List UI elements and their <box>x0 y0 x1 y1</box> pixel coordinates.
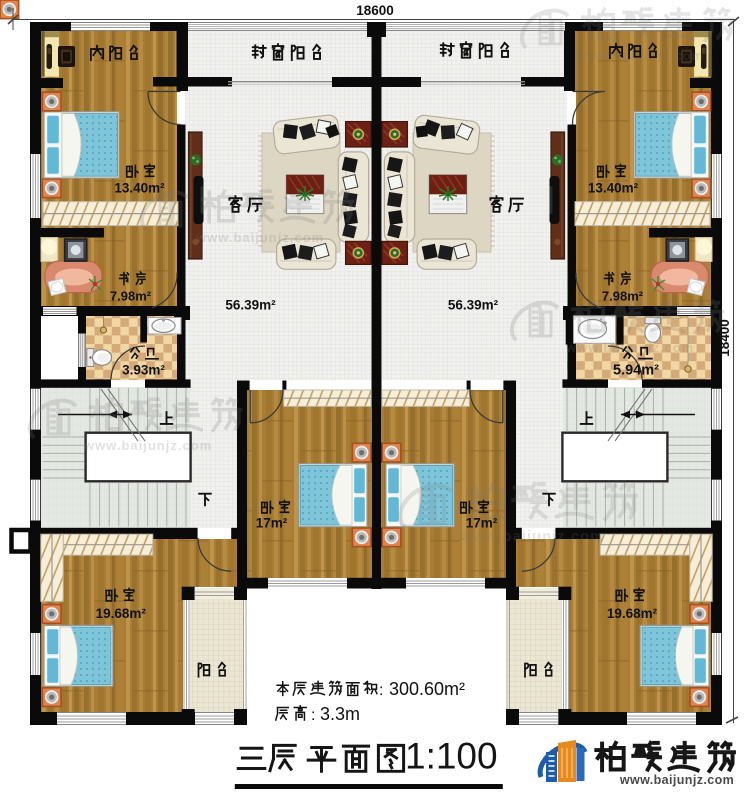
svg-text:5.94m²: 5.94m² <box>613 363 659 379</box>
svg-text:17m²: 17m² <box>466 516 498 531</box>
svg-text:19.68m²: 19.68m² <box>96 606 147 621</box>
svg-text:17m²: 17m² <box>256 516 288 531</box>
svg-text:18600: 18600 <box>356 3 394 18</box>
svg-text:19.68m²: 19.68m² <box>607 606 658 621</box>
svg-text:3.93m²: 3.93m² <box>122 363 165 378</box>
svg-text:7.98m²: 7.98m² <box>110 289 152 304</box>
svg-text::: : <box>311 707 315 724</box>
svg-text:www.baijunjz.com: www.baijunjz.com <box>619 773 734 787</box>
svg-text::: : <box>379 682 383 699</box>
svg-text:300.60m²: 300.60m² <box>389 679 465 699</box>
svg-text:1:100: 1:100 <box>405 736 498 777</box>
svg-text:3.3m: 3.3m <box>320 704 360 724</box>
svg-text:18400: 18400 <box>717 319 732 357</box>
svg-text:13.40m²: 13.40m² <box>588 181 639 196</box>
svg-text:56.39m²: 56.39m² <box>225 298 276 313</box>
svg-text:13.40m²: 13.40m² <box>114 181 165 196</box>
svg-text:56.39m²: 56.39m² <box>448 298 499 313</box>
svg-text:7.98m²: 7.98m² <box>602 289 644 304</box>
